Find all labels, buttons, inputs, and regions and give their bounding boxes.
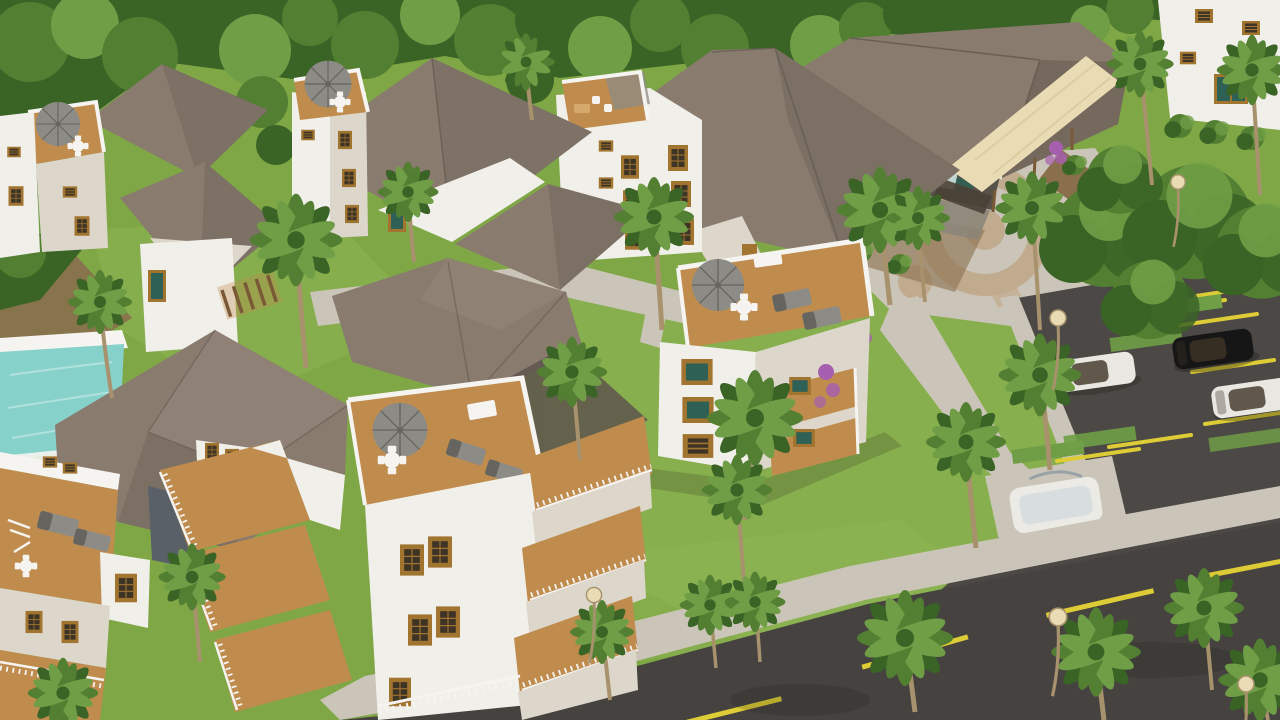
render-image (0, 0, 1280, 720)
villa-a-tower-front (0, 112, 40, 258)
block-c-roof-terrace (562, 72, 650, 130)
villa-a-teal-window (148, 270, 166, 302)
villa-f-balconies (514, 416, 652, 720)
aerial-render-canvas (0, 0, 1280, 720)
villa-a-tower-side (36, 152, 108, 252)
